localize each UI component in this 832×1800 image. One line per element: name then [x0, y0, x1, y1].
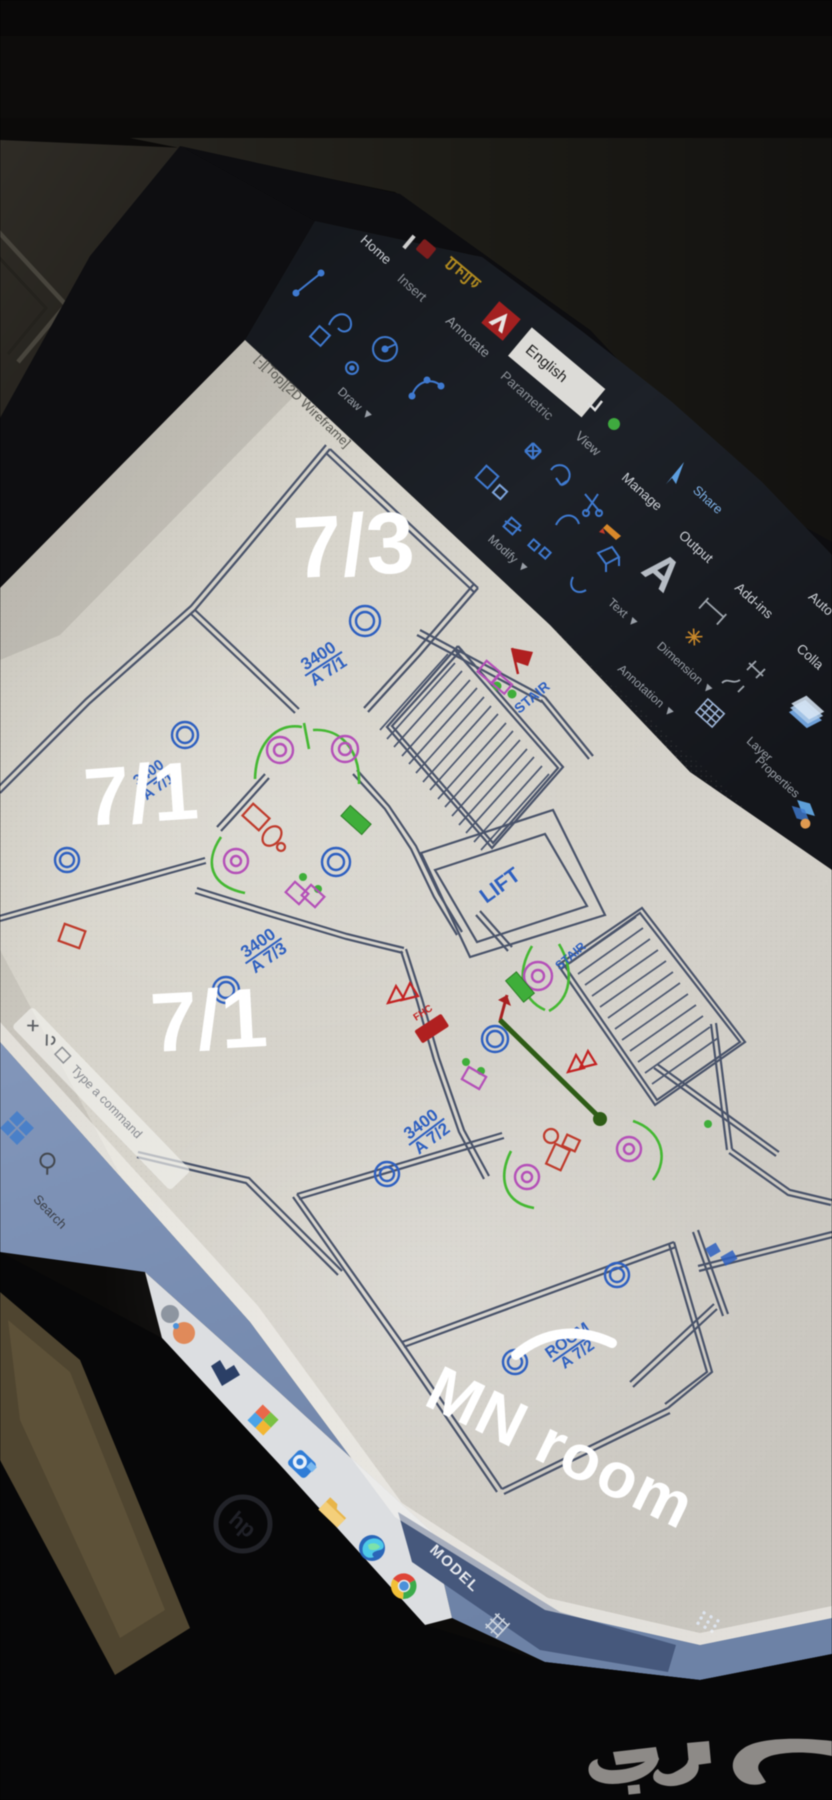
svg-text:7/1: 7/1: [148, 970, 270, 1070]
svg-text:7/3: 7/3: [291, 494, 417, 597]
svg-text:7/1: 7/1: [81, 745, 201, 844]
